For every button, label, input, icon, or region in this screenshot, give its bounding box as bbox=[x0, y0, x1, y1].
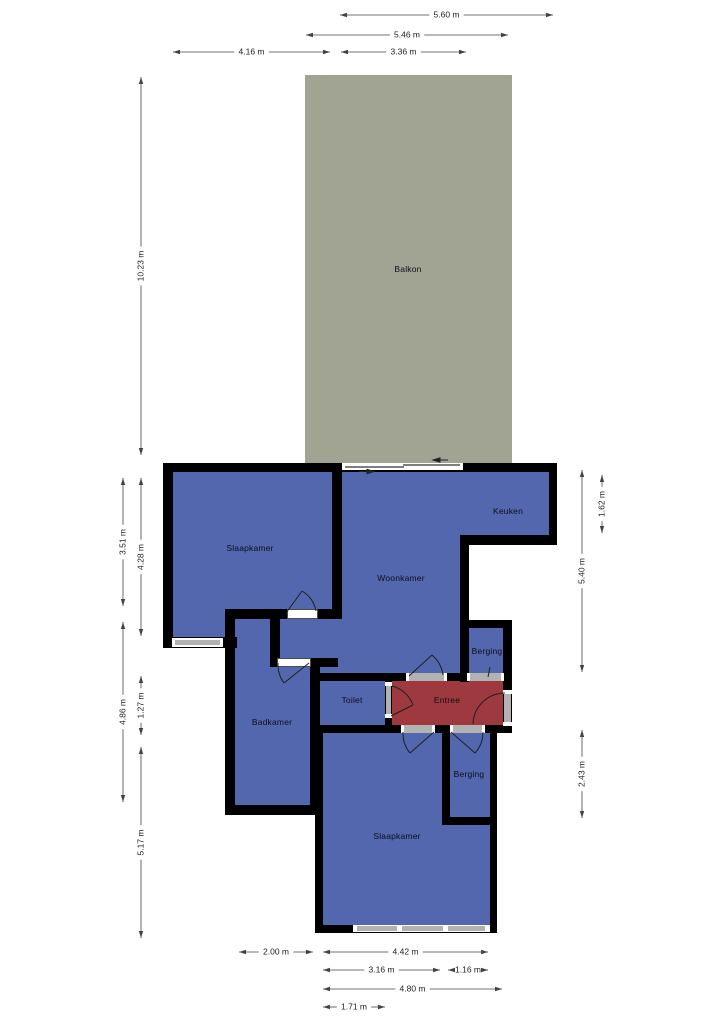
window-glass bbox=[402, 926, 443, 931]
room-label-woonkamer: Woonkamer bbox=[377, 573, 424, 583]
dimension-label: 3.36 m bbox=[391, 47, 417, 57]
door-post bbox=[432, 725, 435, 733]
wall bbox=[460, 535, 469, 682]
wall bbox=[225, 609, 235, 815]
slaapkamer-bottom-floor bbox=[315, 725, 497, 933]
dimension: 5.46 m bbox=[306, 30, 508, 40]
dimension: 4.42 m bbox=[323, 947, 488, 957]
door-post bbox=[385, 682, 392, 686]
dimension-label: 2.00 m bbox=[263, 947, 289, 957]
wall bbox=[549, 463, 557, 545]
door-opening bbox=[408, 673, 445, 681]
dimension-label: 3.16 m bbox=[369, 965, 395, 975]
room-label-slaapkamer-bottom: Slaapkamer bbox=[373, 831, 420, 841]
door-post bbox=[406, 673, 409, 681]
wall bbox=[490, 725, 497, 933]
door-opening bbox=[277, 658, 311, 667]
dimension-label: 5.60 m bbox=[434, 10, 460, 20]
door-post bbox=[503, 722, 512, 726]
door-opening bbox=[404, 725, 432, 733]
door-post bbox=[467, 673, 470, 681]
dimension: 4.28 m bbox=[136, 478, 146, 636]
wall bbox=[460, 535, 557, 545]
dimension: 4.86 m bbox=[118, 622, 128, 802]
dimension-label: 5.46 m bbox=[394, 30, 420, 40]
wall bbox=[442, 725, 450, 825]
dimension-label: 5.17 m bbox=[136, 830, 146, 856]
dimension-label: 3.51 m bbox=[118, 529, 128, 555]
wall bbox=[442, 817, 497, 825]
room-label-berging-top: Berging bbox=[472, 646, 503, 656]
door-post bbox=[385, 714, 392, 718]
door-post bbox=[501, 673, 504, 681]
dimension: 1.16 m bbox=[448, 965, 488, 975]
door-opening bbox=[287, 609, 318, 619]
dimension-label: 10.23 m bbox=[136, 251, 146, 282]
dimension-label: 1.71 m bbox=[341, 1002, 367, 1012]
dimension: 1.71 m bbox=[323, 1002, 385, 1012]
door-post bbox=[450, 725, 453, 733]
dimension-label: 1.27 m bbox=[136, 693, 146, 719]
dimension-label: 1.16 m bbox=[455, 965, 481, 975]
door-post bbox=[482, 725, 485, 733]
room-label-berging-bottom: Berging bbox=[454, 769, 485, 779]
wall bbox=[315, 725, 323, 933]
room-label-badkamer: Badkamer bbox=[252, 717, 292, 727]
dimension: 3.16 m bbox=[323, 965, 440, 975]
dimension: 1.62 m bbox=[597, 475, 607, 533]
dimension-label: 2.43 m bbox=[577, 761, 587, 787]
room-label-balkon: Balkon bbox=[394, 264, 421, 274]
dimension-label: 5.40 m bbox=[577, 558, 587, 584]
dimension: 5.40 m bbox=[577, 470, 587, 672]
room-label-slaapkamer-top: Slaapkamer bbox=[226, 543, 273, 553]
door-opening bbox=[453, 725, 482, 733]
dimension-label: 4.42 m bbox=[393, 947, 419, 957]
room-label-keuken: Keuken bbox=[493, 506, 523, 516]
dimension-label: 4.28 m bbox=[136, 544, 146, 570]
dimension-label: 4.16 m bbox=[239, 47, 265, 57]
dimension: 2.00 m bbox=[239, 947, 313, 957]
dimension: 10.23 m bbox=[136, 77, 146, 455]
door-opening bbox=[386, 686, 391, 714]
wall bbox=[225, 805, 323, 815]
window-glass bbox=[357, 926, 397, 931]
dimension: 5.60 m bbox=[340, 10, 553, 20]
sliding-door-opening bbox=[342, 463, 463, 470]
door-post bbox=[444, 673, 447, 681]
dimension: 4.80 m bbox=[323, 984, 502, 994]
door-post bbox=[503, 690, 512, 694]
door-opening bbox=[469, 673, 503, 681]
dimension-label: 1.62 m bbox=[597, 491, 607, 517]
wall bbox=[332, 463, 342, 618]
window-glass bbox=[175, 640, 220, 645]
wall bbox=[270, 613, 280, 663]
dimension: 3.51 m bbox=[118, 478, 128, 606]
front-door-opening bbox=[504, 694, 511, 722]
dimension: 3.36 m bbox=[341, 47, 466, 57]
dimension: 2.43 m bbox=[577, 730, 587, 818]
dimension: 1.27 m bbox=[136, 676, 146, 735]
wall bbox=[227, 609, 342, 619]
floorplan-canvas: 5.60 m5.46 m4.16 m3.36 m10.23 m3.51 m4.2… bbox=[0, 0, 724, 1024]
door-post bbox=[401, 725, 404, 733]
dimension-label: 4.80 m bbox=[400, 984, 426, 994]
wall bbox=[163, 463, 173, 648]
dimension-label: 4.86 m bbox=[118, 699, 128, 725]
room-label-toilet: Toilet bbox=[341, 695, 362, 705]
window-glass bbox=[448, 926, 485, 931]
room-label-entree: Entree bbox=[434, 695, 460, 705]
dimension: 4.16 m bbox=[173, 47, 330, 57]
dimension: 5.17 m bbox=[136, 747, 146, 938]
